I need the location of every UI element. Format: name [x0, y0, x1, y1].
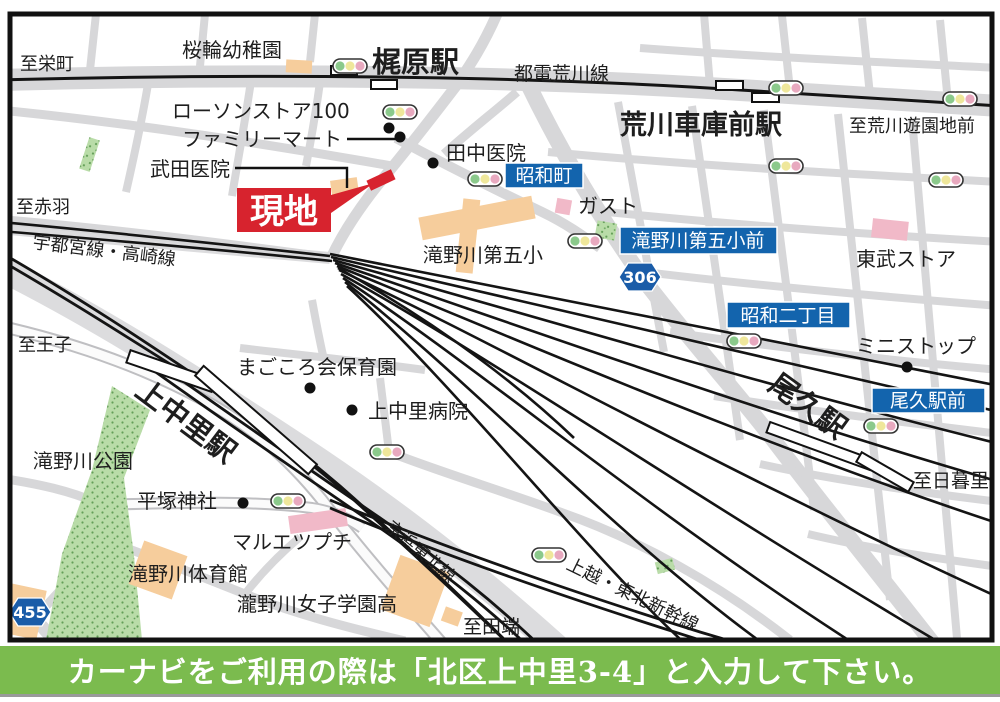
direction-tabata: 至田端 — [463, 616, 520, 638]
bus-stop-showa-nichome-label: 昭和二丁目 — [740, 305, 835, 327]
poi-hiratsuka-shrine: 平塚神社 — [137, 489, 217, 513]
direction-akabane: 至赤羽 — [16, 197, 70, 218]
poi-tobu-store: 東武ストア — [856, 247, 956, 271]
traffic-signal-icon — [568, 234, 602, 248]
traffic-signal-icon — [769, 81, 803, 95]
poi-girls-school: 瀧野川女子学園高 — [237, 592, 397, 616]
car-navi-banner: カーナビをご利用の際は「北区上中里3-4」と入力して下さい。 — [0, 646, 1000, 697]
traffic-signal-icon — [864, 419, 898, 433]
poi-lawson: ローソンストア100 — [172, 99, 350, 123]
poi-familymart: ファミリーマート — [182, 127, 342, 151]
direction-arakawa-yuenchi-mae: 至荒川遊園地前 — [849, 116, 975, 137]
bus-stop-showacho-label: 昭和町 — [515, 165, 572, 187]
poi-daigo-elementary: 滝野川第五小 — [423, 243, 543, 267]
traffic-signal-icon — [532, 548, 566, 562]
familymart-dot — [395, 132, 406, 143]
traffic-signal-icon — [727, 334, 761, 348]
car-navi-banner-text: カーナビをご利用の際は「北区上中里3-4」と入力して下さい。 — [68, 649, 933, 691]
direction-sakaecho: 至栄町 — [20, 54, 74, 75]
poi-maruetsu-petit: マルエツプチ — [232, 530, 352, 554]
site-label: 現地 — [250, 192, 318, 232]
poi-magokoro-nursery: まごころ会保育園 — [237, 355, 397, 379]
map-canvas: 昭和町 滝野川第五小前 昭和二丁目 尾久駅前 306 45 — [0, 0, 1000, 646]
poi-takinogawa-gym: 滝野川体育館 — [128, 562, 248, 586]
bus-stop-daigo-sho-mae: 滝野川第五小前 — [620, 227, 777, 254]
bus-stop-oku-ekimae: 尾久駅前 — [872, 388, 985, 413]
poi-tanaka-clinic: 田中医院 — [446, 141, 526, 165]
poi-takeda-clinic: 武田医院 — [150, 157, 230, 181]
ministop-dot — [902, 362, 913, 373]
access-map-page: 昭和町 滝野川第五小前 昭和二丁目 尾久駅前 306 45 — [0, 0, 1000, 702]
poi-kaminakazato-hospital: 上中里病院 — [368, 399, 468, 423]
hospital-dot — [347, 405, 358, 416]
shrine-dot — [238, 498, 249, 509]
traffic-signal-icon — [769, 159, 803, 173]
station-kajiwara: 梶原駅 — [372, 45, 459, 79]
traffic-signal-icon — [333, 59, 367, 73]
lawson-dot — [384, 123, 395, 134]
poi-sakurawa-kindergarten: 桜輪幼稚園 — [182, 38, 282, 62]
tanaka-clinic-dot — [428, 158, 439, 169]
line-toden-arakawa: 都電荒川線 — [514, 63, 609, 85]
traffic-signal-icon — [370, 445, 404, 459]
traffic-signal-icon — [383, 105, 417, 119]
poi-takinogawa-park: 滝野川公園 — [33, 449, 133, 473]
svg-text:306: 306 — [623, 268, 656, 287]
traffic-signal-icon — [468, 172, 502, 186]
direction-oji: 至王子 — [18, 335, 72, 356]
bus-stop-oku-ekimae-label: 尾久駅前 — [890, 390, 966, 412]
bus-stop-showacho: 昭和町 — [505, 163, 583, 188]
magokoro-dot — [305, 383, 316, 394]
station-arakawa-shako-mae: 荒川車庫前駅 — [620, 109, 782, 141]
route-shield-306: 306 — [619, 263, 661, 291]
traffic-signal-icon — [943, 92, 977, 106]
svg-text:455: 455 — [13, 603, 46, 622]
traffic-signal-icon — [271, 494, 305, 508]
traffic-signal-icon — [929, 173, 963, 187]
direction-nippori: 至日暮里 — [913, 470, 989, 492]
route-shield-455: 455 — [9, 598, 51, 626]
poi-ministop: ミニストップ — [856, 334, 976, 358]
poi-gusto: ガスト — [578, 194, 638, 218]
bus-stop-showa-nichome: 昭和二丁目 — [727, 302, 850, 328]
bus-stop-daigo-sho-mae-label: 滝野川第五小前 — [631, 230, 764, 252]
